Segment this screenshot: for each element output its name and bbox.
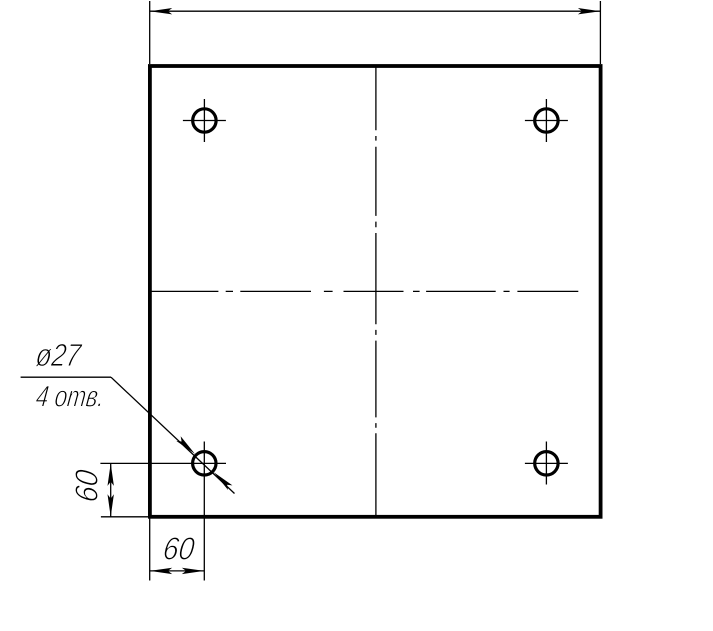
svg-text:60: 60	[161, 531, 197, 567]
svg-text:60: 60	[68, 468, 104, 505]
svg-text:ø27: ø27	[34, 337, 84, 373]
svg-text:4 отв.: 4 отв.	[34, 381, 106, 414]
